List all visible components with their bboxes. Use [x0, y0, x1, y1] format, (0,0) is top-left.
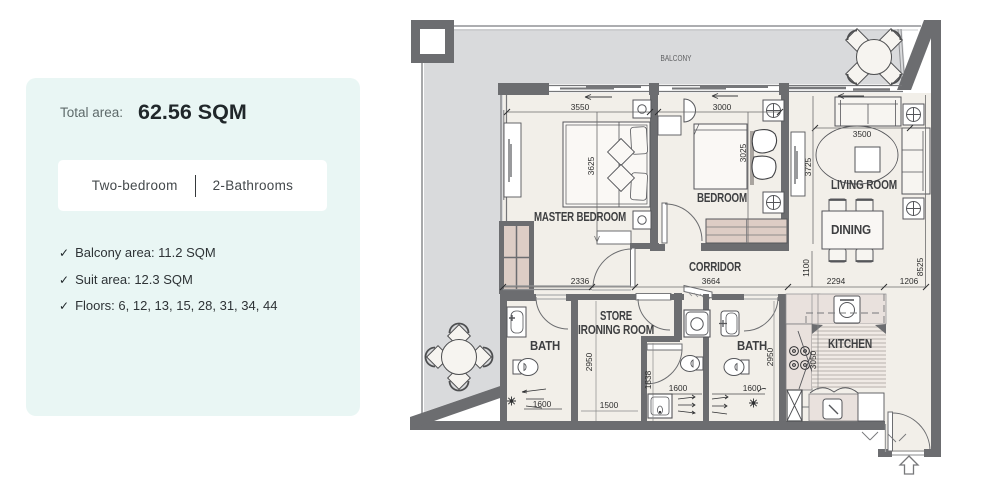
- svg-text:CORRIDOR: CORRIDOR: [689, 260, 741, 274]
- svg-text:BEDROOM: BEDROOM: [697, 191, 747, 205]
- svg-text:3025: 3025: [738, 143, 748, 162]
- svg-text:3050: 3050: [808, 350, 818, 369]
- svg-text:BALCONY: BALCONY: [661, 54, 693, 63]
- svg-text:1600: 1600: [669, 383, 688, 393]
- svg-text:LIVING ROOM: LIVING ROOM: [831, 178, 897, 192]
- svg-text:2294: 2294: [827, 276, 846, 286]
- svg-text:3625: 3625: [586, 156, 596, 175]
- svg-text:2950: 2950: [584, 352, 594, 371]
- svg-text:BATH: BATH: [737, 339, 767, 353]
- svg-text:1100: 1100: [801, 259, 811, 277]
- svg-text:8525: 8525: [915, 257, 925, 276]
- svg-text:3664: 3664: [702, 276, 721, 286]
- svg-text:3550: 3550: [571, 102, 590, 112]
- svg-text:1838: 1838: [643, 370, 653, 389]
- svg-text:DINING: DINING: [831, 223, 871, 237]
- svg-text:3725: 3725: [803, 157, 813, 176]
- svg-text:MASTER BEDROOM: MASTER BEDROOM: [534, 210, 626, 224]
- svg-text:1500: 1500: [600, 400, 619, 410]
- svg-text:BATH: BATH: [530, 339, 560, 353]
- svg-text:IRONING ROOM: IRONING ROOM: [578, 323, 654, 337]
- svg-text:3500: 3500: [853, 129, 872, 139]
- svg-text:KITCHEN: KITCHEN: [828, 337, 872, 351]
- svg-text:1600: 1600: [533, 399, 552, 409]
- svg-text:STORE: STORE: [600, 309, 632, 323]
- svg-text:1206: 1206: [900, 276, 919, 286]
- svg-text:2336: 2336: [571, 276, 590, 286]
- svg-text:3000: 3000: [713, 102, 732, 112]
